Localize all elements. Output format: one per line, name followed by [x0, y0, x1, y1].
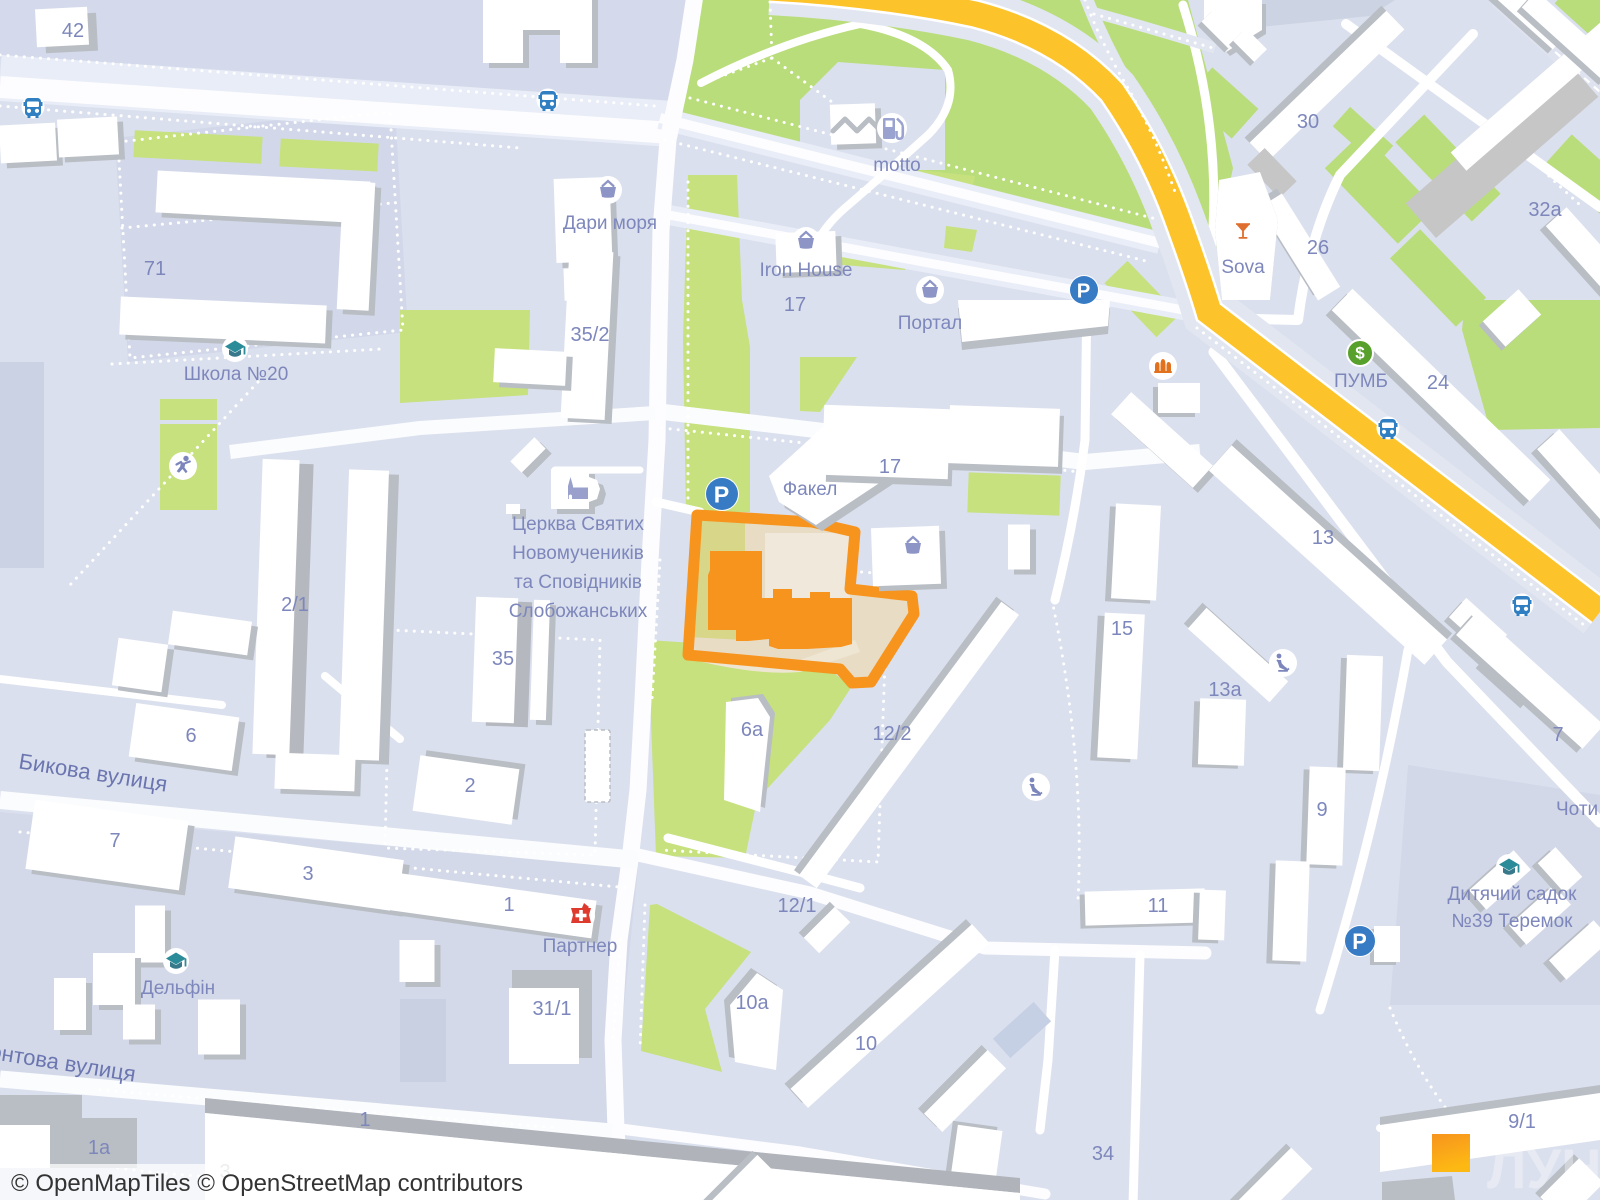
- svg-text:Церква Святих: Церква Святих: [512, 514, 644, 535]
- svg-text:32a: 32a: [1528, 199, 1562, 221]
- svg-text:1: 1: [359, 1109, 370, 1131]
- svg-text:P: P: [1352, 929, 1367, 954]
- svg-text:P: P: [1077, 280, 1091, 302]
- svg-text:42: 42: [62, 20, 84, 42]
- svg-text:Факел: Факел: [783, 479, 838, 500]
- svg-text:2: 2: [464, 775, 475, 797]
- svg-text:30: 30: [1297, 111, 1319, 133]
- svg-text:P: P: [714, 481, 729, 507]
- svg-text:3: 3: [302, 863, 313, 885]
- svg-text:13: 13: [1312, 527, 1334, 549]
- svg-text:12/1: 12/1: [778, 895, 817, 917]
- svg-text:9: 9: [1316, 799, 1327, 821]
- svg-text:17: 17: [784, 294, 806, 316]
- svg-text:ЛУН: ЛУН: [1487, 1137, 1600, 1200]
- svg-text:© OpenMapTiles © OpenStreetMap: © OpenMapTiles © OpenStreetMap contribut…: [11, 1170, 523, 1197]
- svg-text:Дари моря: Дари моря: [563, 213, 657, 234]
- svg-text:ПУМБ: ПУМБ: [1334, 371, 1388, 392]
- svg-text:9/1: 9/1: [1508, 1111, 1536, 1133]
- svg-text:6a: 6a: [741, 719, 764, 741]
- svg-text:17: 17: [879, 456, 901, 478]
- svg-text:31/1: 31/1: [533, 998, 572, 1020]
- svg-text:1a: 1a: [88, 1137, 111, 1159]
- svg-text:1: 1: [503, 894, 514, 916]
- svg-text:№39 Теремок: №39 Теремок: [1452, 911, 1574, 932]
- svg-text:13a: 13a: [1208, 679, 1242, 701]
- svg-text:Дитячий садок: Дитячий садок: [1448, 884, 1578, 905]
- svg-text:$: $: [1355, 344, 1365, 363]
- svg-text:та Сповідників: та Сповідників: [514, 572, 642, 593]
- svg-text:71: 71: [144, 258, 166, 280]
- svg-text:motto: motto: [873, 155, 921, 176]
- svg-text:10: 10: [855, 1033, 877, 1055]
- svg-text:34: 34: [1092, 1143, 1114, 1165]
- svg-text:Партнер: Партнер: [543, 936, 618, 957]
- svg-text:15: 15: [1111, 618, 1133, 640]
- svg-text:7: 7: [109, 830, 120, 852]
- svg-text:Слобожанських: Слобожанських: [509, 601, 648, 622]
- svg-text:Дельфін: Дельфін: [141, 978, 215, 999]
- svg-text:Iron House: Iron House: [760, 260, 853, 281]
- svg-text:11: 11: [1148, 895, 1169, 917]
- svg-text:Школа №20: Школа №20: [184, 364, 289, 385]
- svg-text:12/2: 12/2: [873, 723, 912, 745]
- svg-text:24: 24: [1427, 372, 1449, 394]
- svg-text:Sova: Sova: [1221, 257, 1265, 278]
- svg-text:Портал: Портал: [898, 313, 963, 334]
- svg-text:26: 26: [1307, 237, 1329, 259]
- svg-text:10a: 10a: [735, 992, 769, 1014]
- svg-text:Чоти: Чоти: [1556, 799, 1598, 820]
- svg-text:Новомучеників: Новомучеників: [512, 543, 644, 564]
- svg-text:35: 35: [492, 648, 514, 670]
- svg-text:6: 6: [185, 725, 196, 747]
- svg-text:2/1: 2/1: [281, 594, 309, 616]
- svg-text:35/2: 35/2: [571, 324, 610, 346]
- svg-text:7: 7: [1552, 724, 1563, 746]
